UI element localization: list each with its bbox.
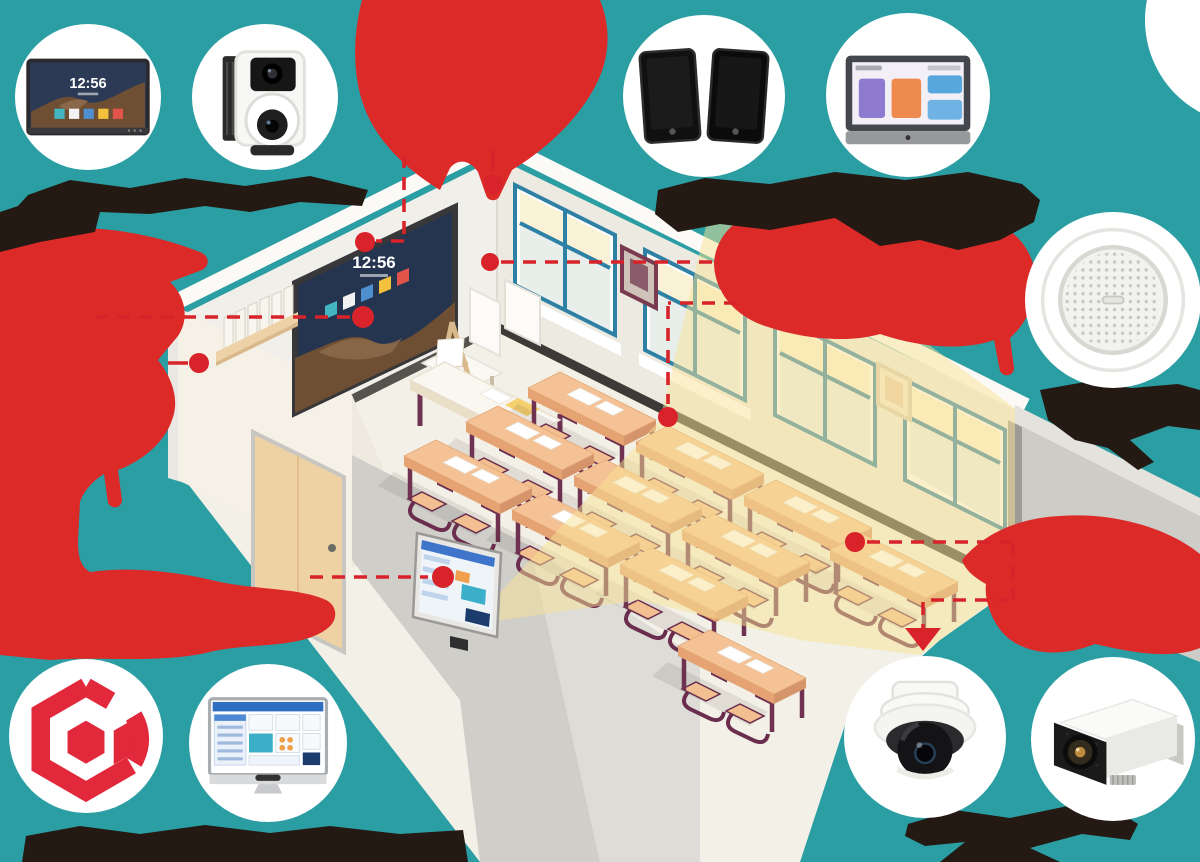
scene-illustration: 12:56 bbox=[0, 0, 1200, 862]
badge-class-card bbox=[189, 664, 347, 822]
display-clock: 12:56 bbox=[352, 253, 395, 272]
interactive-flat-panel-icon: 12:56 bbox=[15, 24, 161, 170]
badge-dome-camera bbox=[844, 656, 1006, 818]
speakers-icon bbox=[623, 15, 785, 177]
badge-interactive-flat-panel: 12:56 bbox=[15, 24, 161, 170]
door-handle bbox=[328, 544, 336, 552]
dome-camera-icon bbox=[844, 656, 1006, 818]
brand-logo-icon bbox=[9, 659, 163, 813]
badge-ptz-camera bbox=[192, 24, 338, 170]
badge-speakers bbox=[623, 15, 785, 177]
control-panel-icon bbox=[826, 13, 990, 177]
badge-brand-logo bbox=[9, 659, 163, 813]
badge-box-camera bbox=[1031, 657, 1195, 821]
badge-clock: 12:56 bbox=[69, 76, 106, 92]
box-camera-icon bbox=[1031, 657, 1195, 821]
class-card-icon bbox=[189, 664, 347, 822]
smart-classroom-diagram: 12:56 bbox=[0, 0, 1200, 862]
badge-control-panel bbox=[826, 13, 990, 177]
ceiling-speaker-icon bbox=[1025, 212, 1200, 388]
ptz-camera-icon bbox=[192, 24, 338, 170]
badge-ceiling-speaker bbox=[1025, 212, 1200, 388]
